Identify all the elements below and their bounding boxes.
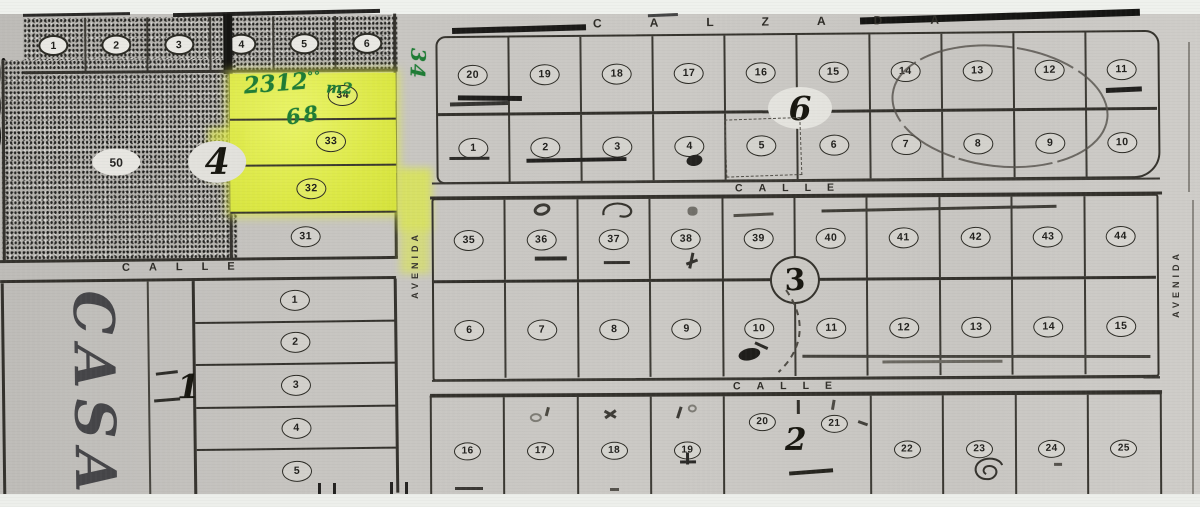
pencil-squiggle [599, 199, 639, 223]
lot-number: 40 [816, 227, 846, 248]
lot-cell: 4 [211, 16, 274, 71]
block-3: 35363738394041424344 6789101112131415 3 [431, 194, 1159, 381]
lot-number: 38 [671, 228, 701, 249]
lot-number: 39 [743, 228, 773, 249]
lot-number: 11 [816, 317, 846, 338]
lot-number: 3 [602, 136, 632, 157]
lot-number: 1 [39, 35, 69, 56]
lot-cell: 4 [196, 406, 397, 451]
lot-cell: 19 [509, 37, 582, 113]
lot-cell: 2 [510, 114, 583, 181]
lot-cell: 22 [872, 395, 945, 503]
lot-number: 33 [316, 131, 346, 152]
handwritten-avenida-note: 34 [405, 48, 430, 81]
lot-cell: 17 [654, 36, 727, 112]
street-label-wrap: AVENIDA [400, 210, 430, 320]
lot-cell: 3 [196, 364, 397, 409]
lot-cell: 23 [944, 395, 1017, 503]
area-unit: m2 [326, 79, 353, 98]
lot-cell: 31 [231, 214, 397, 259]
pencil-line [802, 355, 1150, 358]
block-label: 1 [177, 367, 200, 406]
lot-number: 6 [819, 135, 849, 156]
pencil-mark [797, 400, 800, 414]
lot-number: 12 [889, 317, 919, 338]
lot-number: 17 [527, 442, 554, 460]
pencil-mark [530, 413, 542, 422]
lot-cell: 7 [506, 282, 579, 377]
handwritten-casa: CASA [23, 295, 165, 497]
lot-cell: 6 [337, 16, 398, 71]
street-label-calle: CALLE [735, 182, 850, 195]
block2-center-cell: 20 21 2 [725, 396, 872, 505]
line-tick [610, 488, 619, 491]
lot-number: 44 [1105, 225, 1135, 246]
lot-number: 5 [282, 461, 312, 482]
lot-number: 42 [961, 226, 991, 247]
lot-number: 6 [352, 33, 382, 54]
lot-number: 7 [527, 319, 557, 340]
pencil-mark [604, 261, 630, 264]
lot-number: 9 [672, 318, 702, 339]
lot-number: 5 [289, 33, 319, 54]
line-tick [455, 487, 483, 490]
line-tick [405, 482, 408, 494]
lot-number: 25 [1110, 440, 1137, 458]
casa-text: CASA [60, 290, 129, 503]
lot-number: 1 [280, 289, 310, 310]
pencil-mark [789, 468, 833, 475]
lot-number: 17 [674, 63, 704, 84]
block-2: 16171819 20 21 2 22232425 [430, 392, 1162, 507]
pencil-mark [1054, 463, 1062, 466]
lot-number: 37 [599, 229, 629, 250]
lot-cell: 2 [86, 17, 149, 72]
block-label: 4 [204, 141, 229, 183]
lot-cell: 2 [195, 321, 396, 366]
block-4: 123456 343332 31 2312°°m2 68 50 4 [1, 14, 399, 261]
lot-number: 2 [101, 34, 131, 55]
lot-number: 18 [602, 63, 632, 84]
block-6: 20191817161514131211 12345678910 6 [435, 30, 1160, 184]
lot-cell: 15 [1086, 278, 1157, 373]
lot-number: 20 [458, 65, 488, 86]
lot-number: 3 [164, 34, 194, 55]
pencil-mark [449, 157, 489, 160]
lot-cell: 17 [505, 397, 579, 505]
scan-edge-bottom [0, 494, 1200, 507]
lot-number: 19 [530, 64, 560, 85]
pencil-box [724, 117, 802, 178]
lot-cell: 25 [1089, 394, 1160, 502]
lot-number: 21 [821, 415, 848, 433]
lot-cell: 24 [1016, 395, 1089, 503]
lot-number: 3 [281, 375, 311, 396]
street-label-wrap: AVENIDA [1162, 224, 1190, 344]
street-avenida-left: 34 AVENIDA [396, 14, 434, 495]
lot-cell: 44 [1085, 196, 1156, 276]
pencil-mark [688, 207, 698, 216]
line-tick [318, 483, 321, 494]
lot-number: 8 [599, 319, 629, 340]
lot-number: 32 [296, 178, 326, 199]
pencil-mark [535, 256, 567, 260]
pencil-scribble [968, 455, 1008, 483]
lot-cell: 8 [579, 281, 652, 376]
lot-cell: 1 [438, 115, 511, 182]
lot-number: 16 [746, 62, 776, 83]
lot-number: 15 [818, 62, 848, 83]
pencil-ellipse [881, 39, 1114, 179]
lot-cell: 1 [195, 279, 396, 324]
lot-cell: 3 [582, 114, 655, 181]
lot-cell: 5 [197, 449, 398, 494]
street-label-calzada: CALZADA [593, 12, 987, 30]
block-1: 12345 CASA 1 [0, 279, 401, 498]
lot-number: 4 [281, 417, 311, 438]
lot-cell: 18 [582, 36, 655, 112]
lot-number: 2 [280, 332, 310, 353]
lot-number: 15 [1106, 315, 1136, 336]
lot-number: 35 [454, 229, 484, 250]
lot-cell: 35 [433, 200, 506, 280]
lot-number: 16 [454, 442, 481, 460]
street-label-avenida: AVENIDA [410, 231, 420, 299]
ink-bar [223, 14, 232, 74]
block4-label-oval: 4 [188, 141, 246, 183]
area-value: 2312 [243, 68, 309, 100]
block-label: 2 [785, 422, 807, 458]
lot-number: 4 [675, 136, 705, 157]
lot-cell: 32 [230, 166, 396, 214]
lot-number: 14 [1034, 316, 1064, 337]
block2-row-right: 22232425 [872, 394, 1159, 503]
lot-number: 20 [749, 413, 776, 431]
block-border [1, 283, 6, 497]
street-label-calle: CALLE [733, 380, 848, 393]
pencil-mark [686, 452, 689, 464]
lot-cell: 4 [654, 113, 727, 180]
street-avenida-right: AVENIDA [1160, 196, 1200, 507]
lot-cell: 19 [652, 396, 726, 504]
lot-number: 6 [454, 319, 484, 340]
map-edge-line [1192, 200, 1194, 500]
street-label-calle: CALLE [122, 260, 254, 273]
lot-cell: 33 [230, 119, 396, 167]
block1-lots: 12345 [195, 279, 398, 495]
lot-number: 18 [601, 442, 628, 460]
lot-number: 50 [109, 155, 122, 169]
lot-number: 43 [1033, 226, 1063, 247]
lot-number: 2 [530, 137, 560, 158]
scanned-plat-map: 123456 343332 31 2312°°m2 68 50 4 CALLE [0, 0, 1200, 507]
lot-cell: 9 [651, 281, 724, 376]
lot-cell: 1 [23, 18, 86, 73]
lot-number: 24 [1038, 440, 1065, 458]
line-tick [333, 483, 336, 494]
street-stroke [452, 24, 586, 34]
lot-cell: 6 [434, 282, 507, 377]
lot-number: 22 [894, 440, 921, 458]
pencil-arc [720, 286, 807, 377]
line-tick [390, 482, 393, 494]
pencil-mark [688, 404, 697, 412]
street-label-avenida: AVENIDA [1171, 250, 1181, 318]
pencil-mark [458, 95, 522, 101]
handwritten-lot34-note: 68 [284, 100, 323, 130]
map-edge-line [1188, 42, 1190, 192]
lot-number: 31 [291, 226, 321, 247]
lot-cell: 3 [149, 17, 212, 72]
lot-number: 41 [888, 227, 918, 248]
lot-cell: 5 [274, 16, 337, 71]
area-superscript: °° [307, 69, 322, 84]
lot-number: 36 [526, 229, 556, 250]
lot-number: 13 [961, 316, 991, 337]
lot-cell: 14 [1013, 279, 1086, 374]
